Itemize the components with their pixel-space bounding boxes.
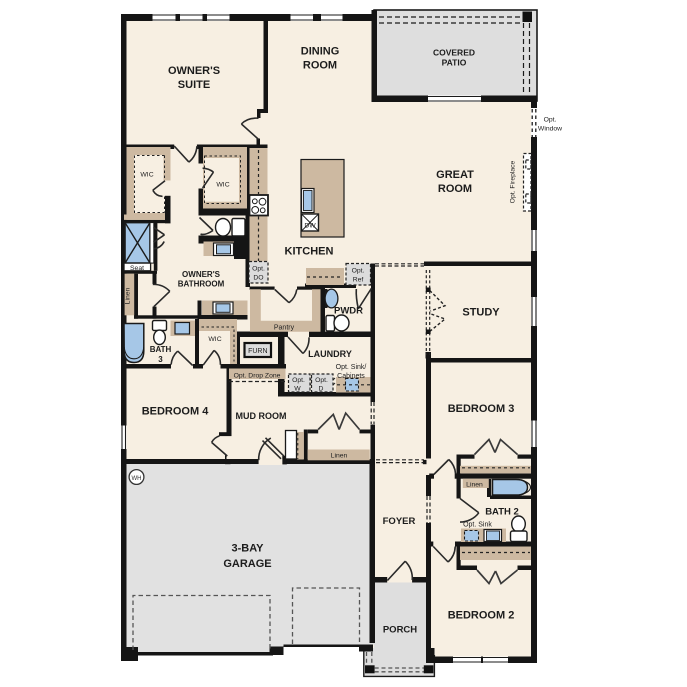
svg-text:Linen: Linen [125, 287, 132, 304]
svg-text:PORCH: PORCH [383, 625, 417, 636]
svg-text:COVERED: COVERED [433, 48, 475, 58]
svg-text:PWDR: PWDR [334, 306, 363, 317]
svg-text:D: D [319, 386, 324, 393]
svg-text:BATH: BATH [150, 345, 172, 354]
svg-text:DO: DO [253, 275, 263, 282]
svg-text:PATIO: PATIO [442, 58, 467, 68]
svg-text:Cabinets: Cabinets [337, 373, 365, 380]
svg-text:Opt.: Opt. [352, 268, 365, 275]
svg-text:W: W [294, 386, 301, 393]
svg-text:BEDROOM 2: BEDROOM 2 [448, 610, 515, 622]
svg-text:GREAT: GREAT [436, 169, 474, 181]
svg-text:FURN: FURN [248, 348, 267, 355]
svg-text:WIC: WIC [140, 172, 153, 179]
svg-text:Window: Window [538, 126, 562, 133]
svg-text:LAUNDRY: LAUNDRY [308, 349, 352, 359]
svg-text:3-BAY: 3-BAY [232, 543, 265, 555]
svg-text:Linen: Linen [466, 482, 483, 489]
svg-text:BATH 2: BATH 2 [485, 507, 519, 518]
svg-text:Opt.: Opt. [292, 377, 305, 384]
svg-text:Opt.: Opt. [544, 117, 557, 124]
svg-text:Opt. Sink: Opt. Sink [463, 522, 492, 529]
svg-text:Seat: Seat [130, 265, 144, 272]
svg-text:FOYER: FOYER [383, 516, 416, 527]
svg-text:DINING: DINING [301, 46, 340, 58]
svg-text:ROOM: ROOM [303, 60, 337, 72]
svg-text:BEDROOM 4: BEDROOM 4 [142, 406, 210, 418]
svg-text:Opt. Drop Zone: Opt. Drop Zone [234, 373, 281, 380]
svg-text:Pantry: Pantry [274, 325, 295, 332]
svg-text:STUDY: STUDY [462, 307, 500, 319]
svg-text:GARAGE: GARAGE [223, 558, 271, 570]
svg-text:BEDROOM 3: BEDROOM 3 [448, 403, 515, 415]
svg-text:WIC: WIC [216, 182, 229, 189]
svg-text:KITCHEN: KITCHEN [285, 246, 334, 258]
svg-text:OWNER'S: OWNER'S [182, 270, 221, 279]
svg-text:WH: WH [132, 476, 142, 482]
svg-text:BATHROOM: BATHROOM [178, 280, 225, 289]
svg-text:Opt.: Opt. [315, 377, 328, 384]
svg-text:Opt.: Opt. [252, 266, 265, 273]
svg-text:3: 3 [158, 355, 163, 364]
svg-text:Ref: Ref [353, 277, 364, 284]
svg-text:MUD ROOM: MUD ROOM [236, 411, 287, 421]
svg-text:SUITE: SUITE [178, 79, 210, 91]
svg-text:DW: DW [304, 223, 316, 230]
svg-text:Linen: Linen [331, 452, 348, 459]
svg-text:OWNER'S: OWNER'S [168, 65, 220, 77]
svg-text:WIC: WIC [208, 336, 221, 343]
svg-text:Opt. Sink/: Opt. Sink/ [336, 364, 367, 371]
svg-text:ROOM: ROOM [438, 183, 472, 195]
svg-text:Opt. Fireplace: Opt. Fireplace [510, 160, 517, 203]
